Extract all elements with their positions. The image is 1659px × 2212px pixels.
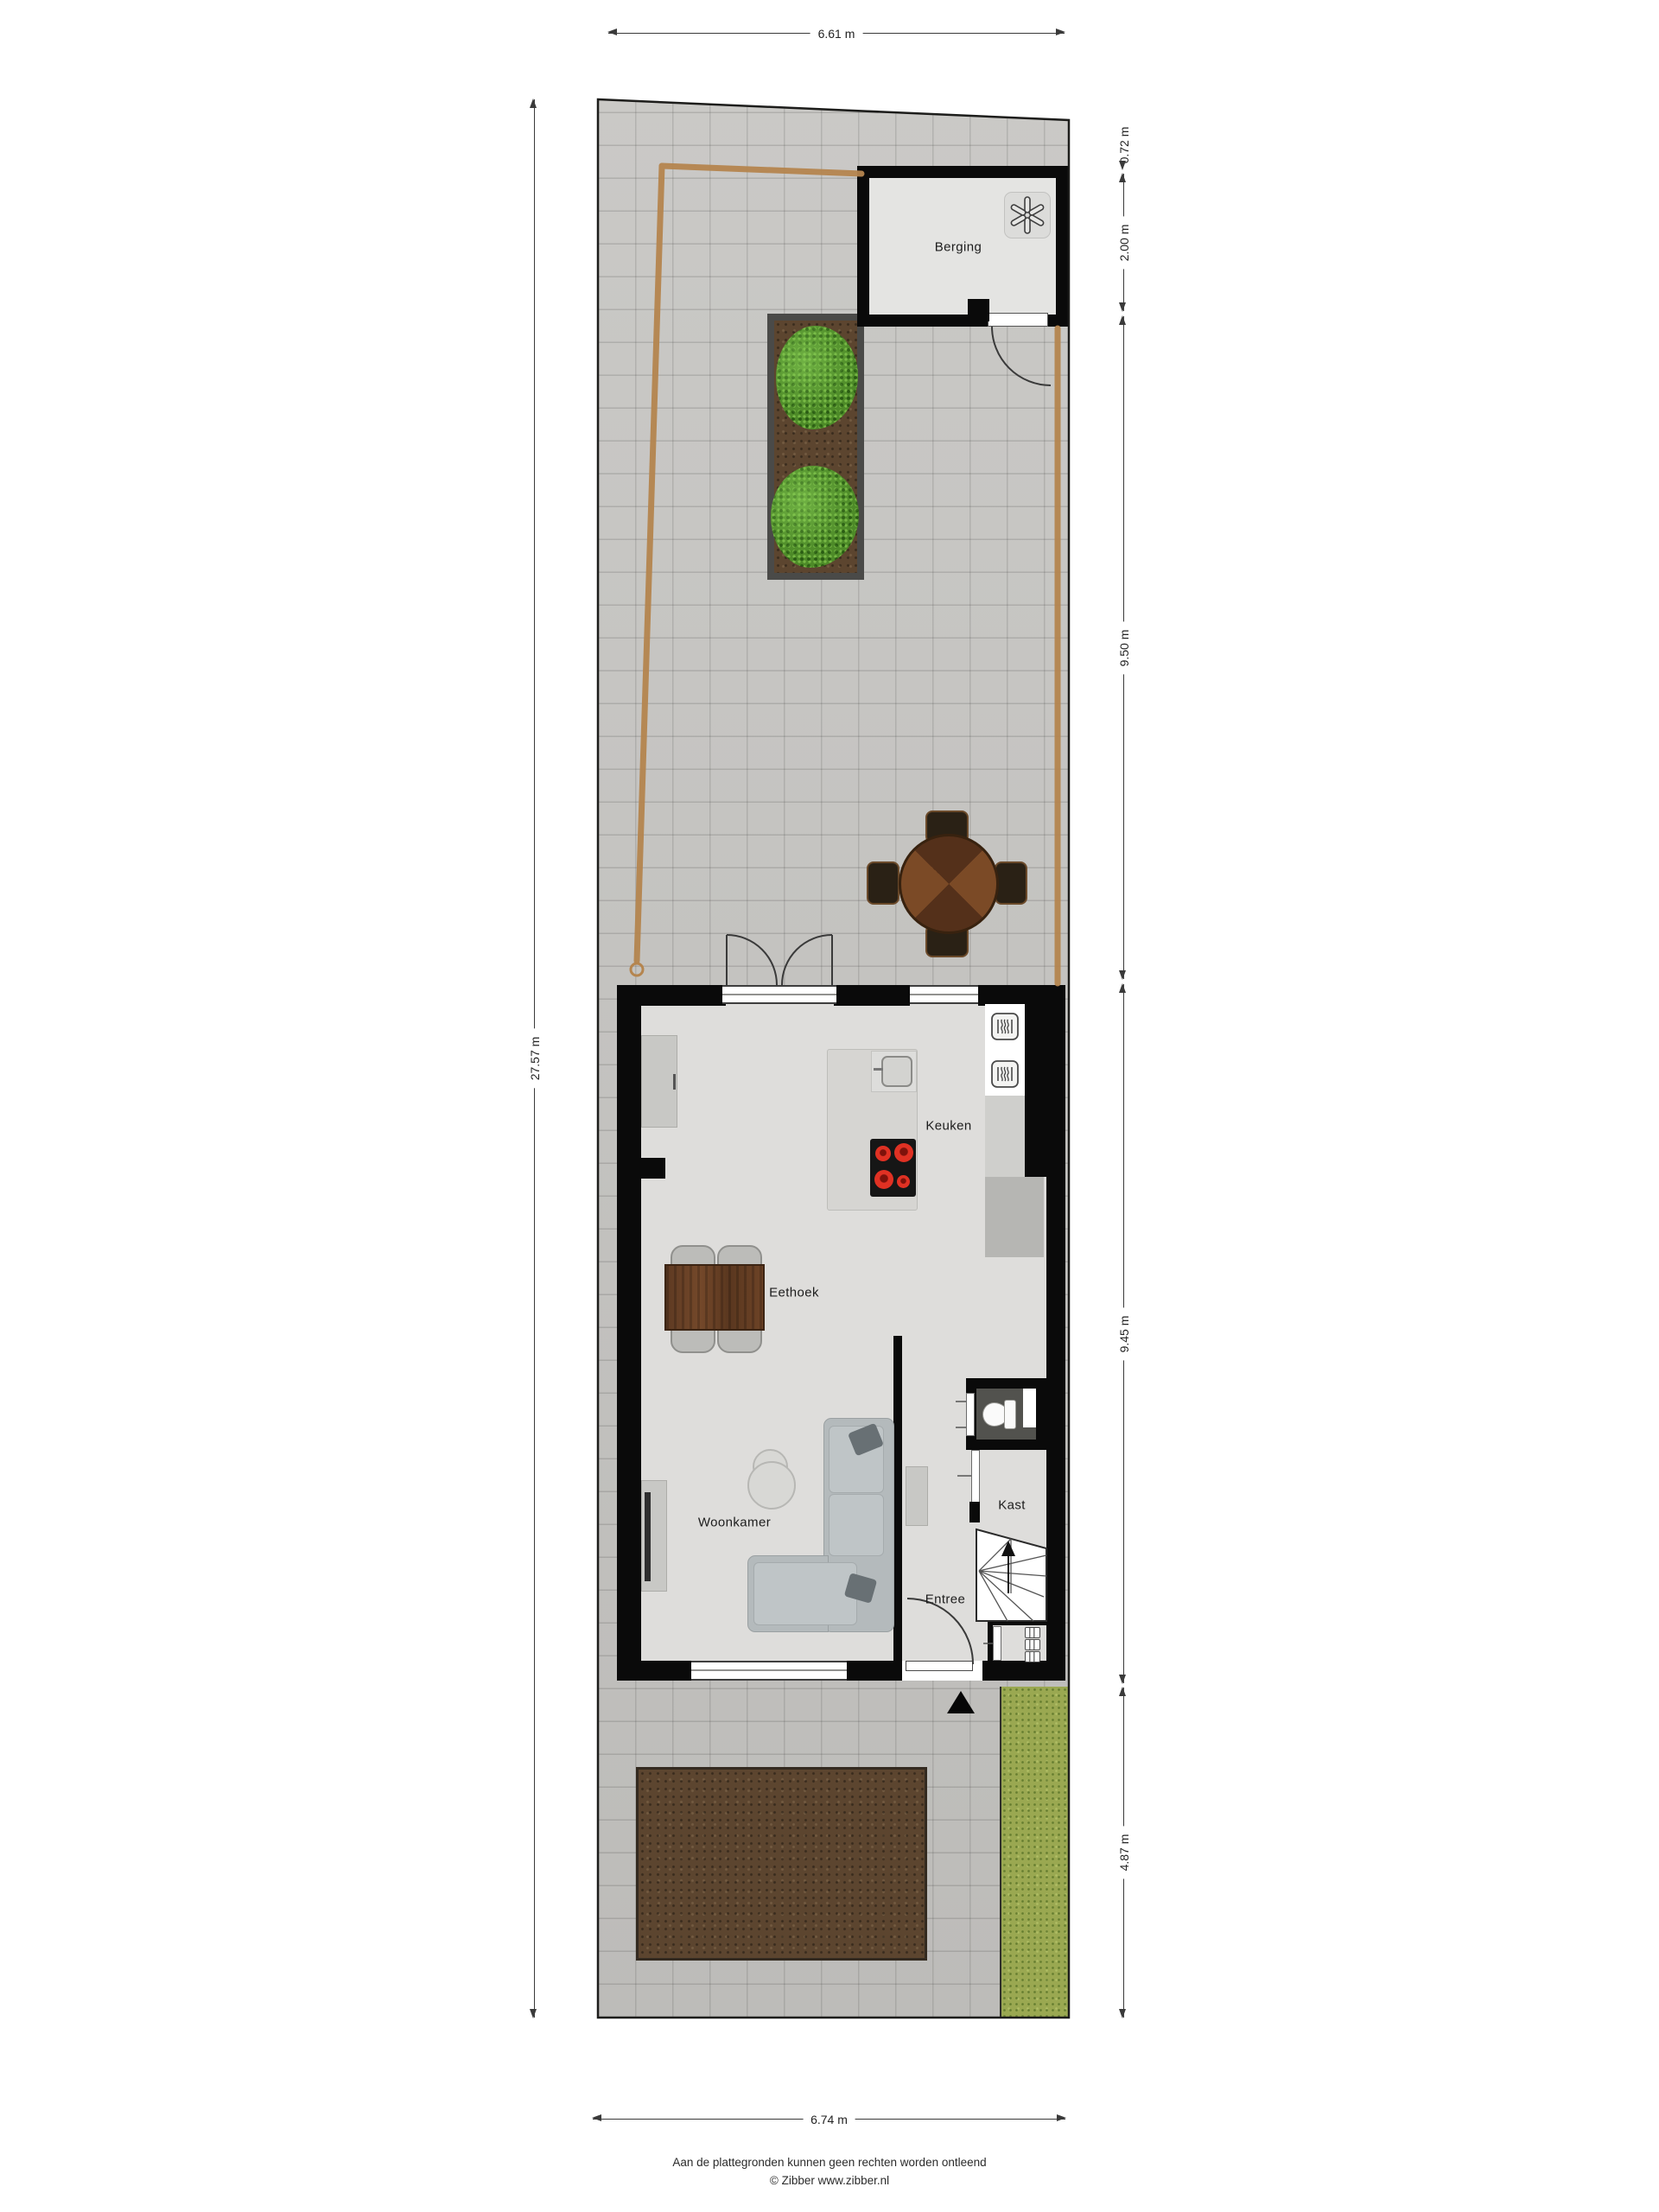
sofa-cushion [753,1562,857,1625]
room-label-keuken: Keuken [925,1119,971,1134]
interior-wall-stub [641,1158,665,1179]
dimension-right-3: 9.45 m [1123,984,1124,1683]
oven-icon [990,1012,1020,1041]
kitchen-counter [985,1096,1025,1177]
faucet-icon [874,1068,883,1071]
burner [894,1143,913,1162]
room-label-entree: Entree [925,1592,966,1607]
ventilation-unit-icon [1004,192,1051,238]
garden-chair [995,861,1027,905]
garden-table [899,834,999,934]
dimension-bottom: 6.74 m [593,2119,1065,2120]
dimension-right-1: 2.00 m [1123,174,1124,311]
front-planting-bed [636,1767,927,1961]
cabinet-handle [673,1074,676,1090]
toilet-duct [1023,1389,1036,1427]
dimension-right-3-label: 9.45 m [1116,1307,1132,1360]
understairs-wall [993,1618,1046,1625]
berging-wall-stub [968,299,989,321]
house-wall-top [834,985,910,1006]
house-wall-right [1046,985,1065,1681]
dining-chair [717,1327,762,1353]
side-table [747,1461,796,1510]
room-label-woonkamer: Woonkamer [698,1516,771,1530]
toilet-cistern [1004,1400,1016,1429]
meter-icon [1025,1639,1040,1650]
burner [874,1170,893,1189]
house-wall-right-thick [1025,985,1046,1177]
house-wall-front [617,1661,691,1681]
room-label-berging: Berging [935,240,982,255]
dimension-top: 6.61 m [608,33,1065,34]
room-label-kast: Kast [998,1498,1026,1513]
dimension-right-4: 4.87 m [1123,1688,1124,2018]
copyright-text: © Zibber www.zibber.nl [0,2174,1659,2187]
tv-icon [645,1492,651,1581]
berging-door-opening [988,313,1048,327]
meter-icon [1025,1651,1040,1662]
house-wall-front [982,1661,1065,1681]
meter-icon [1025,1627,1040,1638]
rear-window [910,985,978,1004]
sofa-cushion [829,1494,884,1556]
kast-wall-stub [969,1502,980,1522]
room-label-eethoek: Eethoek [769,1286,819,1300]
dimension-bottom-label: 6.74 m [803,2112,855,2127]
dimension-top-label: 6.61 m [810,26,863,41]
entrance-arrow-icon [947,1691,975,1713]
disclaimer-text: Aan de plattegronden kunnen geen rechten… [0,2156,1659,2169]
dimension-right-2-label: 9.50 m [1116,621,1132,674]
sink-icon [881,1056,912,1087]
fridge-cabinet [641,1035,677,1128]
dimension-right-0-label: 0.72 m [1116,118,1132,171]
house-wall-left [617,985,641,1681]
dividing-wall [893,1336,902,1661]
kitchen-counter-corner [985,1177,1044,1257]
front-grass-strip [1000,1687,1070,2018]
dimension-left: 27.57 m [534,99,535,2018]
oven-icon [990,1059,1020,1089]
hob-icon [870,1139,916,1197]
meter-cupboard-door [993,1626,1001,1661]
front-window [691,1661,847,1681]
floorplan-page: Berging Keuken Eethoek Woonkamer Kast En… [0,0,1659,2212]
dining-table [664,1264,765,1331]
front-door-leaf [906,1661,973,1671]
burner [897,1175,910,1188]
hall-sideboard [906,1466,928,1526]
sink-unit [871,1051,917,1092]
house-wall-front [847,1661,902,1681]
toilet-door [966,1393,975,1436]
dimension-left-label: 27.57 m [527,1029,543,1089]
burner [875,1146,891,1161]
dimension-right-2: 9.50 m [1123,316,1124,979]
planter-box [767,314,864,580]
kast-door [971,1450,980,1503]
dimension-right-1-label: 2.00 m [1116,216,1132,269]
garden-double-door-threshold [722,985,836,1004]
garden-chair [867,861,899,905]
dimension-right-4-label: 4.87 m [1116,1827,1132,1879]
dining-chair [671,1327,715,1353]
dimension-right-0: 0.72 m [1123,120,1124,169]
